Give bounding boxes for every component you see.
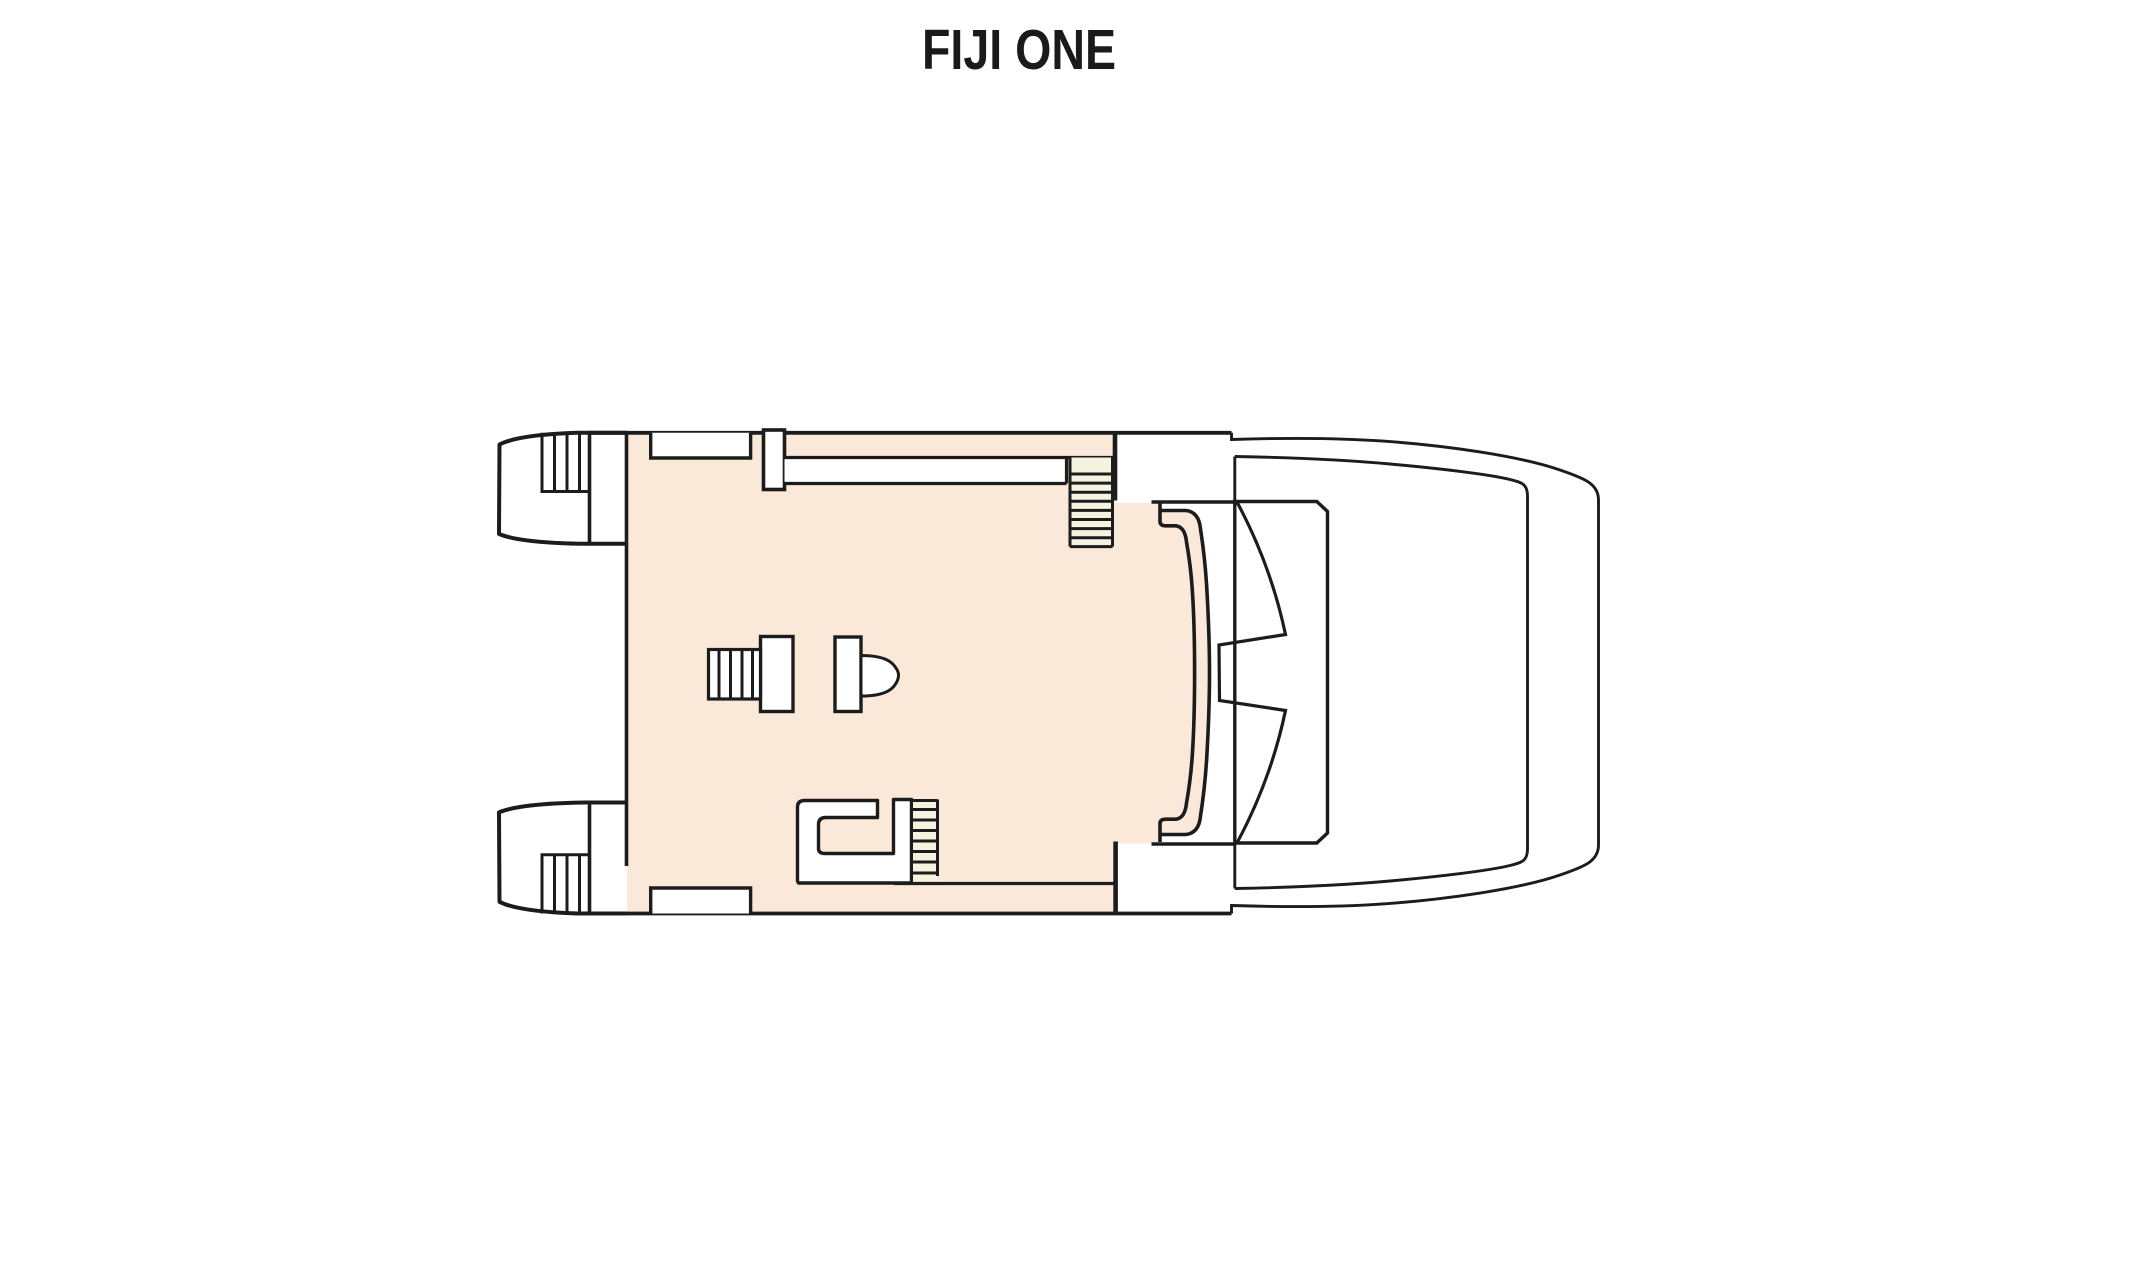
svg-text:FIJI ONE: FIJI ONE [922, 18, 1116, 82]
